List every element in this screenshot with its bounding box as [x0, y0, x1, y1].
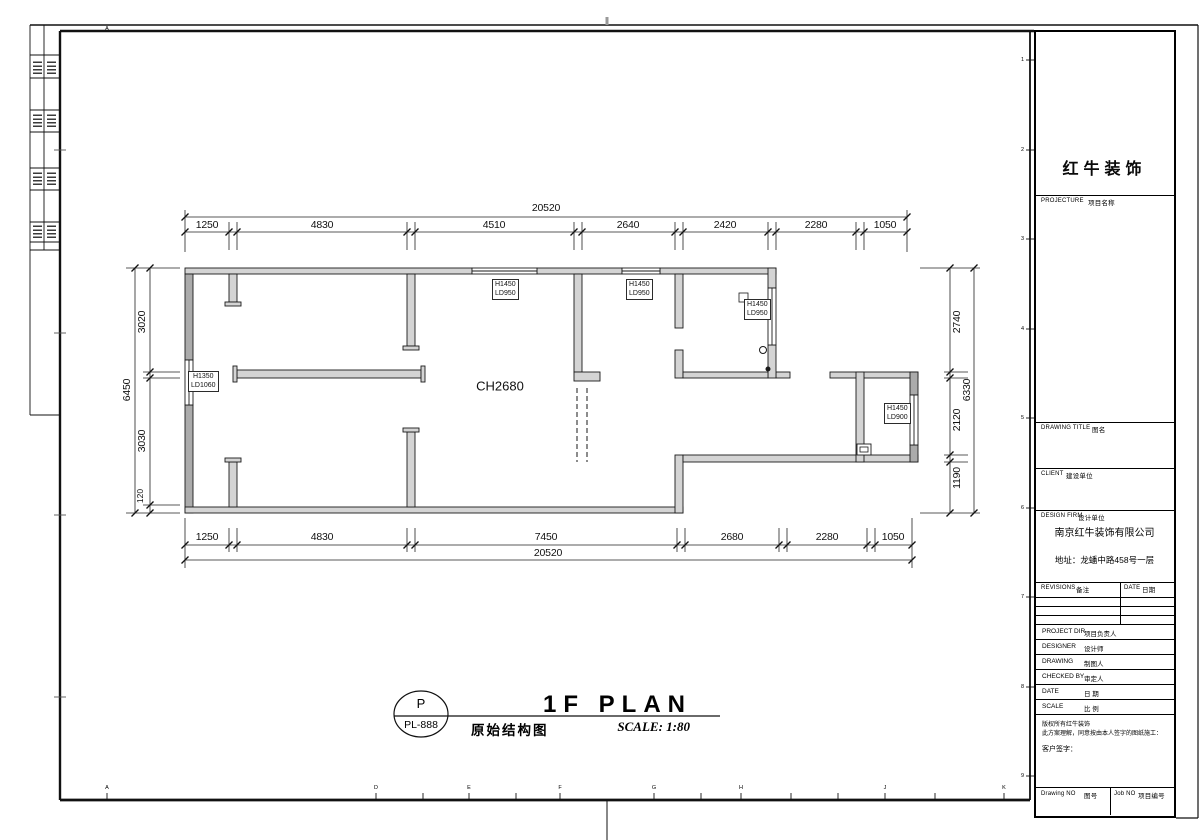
dim-left-overall: 6450	[121, 379, 133, 402]
job-no-label: Job NO	[1114, 791, 1136, 797]
drawing-title-label: DRAWING TITLE	[1041, 425, 1090, 431]
dim-top-seg-3: 2640	[617, 219, 640, 231]
customer-sign-label: 客户签字：	[1042, 744, 1077, 754]
windows	[185, 268, 918, 445]
tag-line2: LD950	[629, 290, 650, 299]
title-block: 红牛装饰 PROJECTURE 项目名称 DRAWING TITLE 图名 CL…	[1034, 30, 1176, 818]
dim-bot-seg-0: 1250	[196, 531, 219, 543]
divider	[1036, 468, 1174, 469]
tag-line1: H1350	[191, 373, 216, 382]
row-designer-label: DESIGNER	[1042, 643, 1076, 650]
revisions-label: REVISIONS	[1041, 585, 1075, 591]
sheet-title-en: 1F PLAN	[520, 691, 692, 719]
strip-mark	[33, 171, 42, 185]
sheet-scale: SCALE: 1:80	[520, 719, 690, 735]
bubble-letter: P	[395, 696, 447, 711]
dim-top-seg-0: 1250	[196, 219, 219, 231]
tag-line2: LD900	[887, 414, 908, 423]
reference-ticks	[107, 60, 1034, 800]
date-col-label: DATE	[1124, 585, 1140, 591]
strip-mark	[33, 224, 42, 238]
grid-number: 2	[1014, 147, 1024, 153]
grid-number: 4	[1014, 326, 1024, 332]
dim-top-seg-5: 2280	[805, 219, 828, 231]
row-checked-label: CHECKED BY	[1042, 673, 1084, 680]
drawing-no-cn: 图号	[1084, 790, 1097, 800]
window-tag: H1450 LD900	[884, 403, 911, 424]
grid-letter: A	[105, 785, 109, 791]
dim-left-seg-1: 3030	[136, 430, 148, 453]
divider	[1036, 639, 1174, 640]
project-title-label: PROJECTURE	[1041, 198, 1084, 204]
walls	[185, 268, 918, 513]
grid-letter: J	[884, 785, 887, 791]
dim-top-seg-6: 1050	[874, 219, 897, 231]
drawing-title-cn: 图名	[1092, 424, 1105, 434]
grid-letter: K	[1002, 785, 1006, 791]
client-cn: 建设单位	[1066, 470, 1093, 480]
cad-sheet: 20520 1250 4830 4510 2640 2420 2280 1050…	[0, 0, 1200, 840]
dim-bot-seg-3: 2680	[721, 531, 744, 543]
grid-letter: E	[467, 785, 471, 791]
drawing-no-label: Drawing NO	[1041, 791, 1076, 797]
divider	[1036, 195, 1174, 196]
tag-line2: LD950	[747, 310, 768, 319]
dim-right-overall: 6330	[961, 379, 973, 402]
tag-line1: H1450	[495, 281, 516, 290]
tag-line2: LD950	[495, 290, 516, 299]
job-no-cn: 项目编号	[1138, 790, 1165, 800]
divider	[1036, 684, 1174, 685]
dim-bot-seg-4: 2280	[816, 531, 839, 543]
row-scale-cn: 比 例	[1084, 703, 1099, 713]
tag-line1: H1450	[887, 405, 908, 414]
strip-mark	[47, 171, 56, 185]
grid-number: 9	[1014, 773, 1024, 779]
divider	[1036, 510, 1174, 511]
dim-right-seg-0: 2740	[951, 311, 963, 334]
firm-name: 南京红牛装饰有限公司	[1036, 524, 1173, 539]
divider	[1036, 624, 1174, 625]
grid-letter: D	[374, 785, 378, 791]
row-date-cn: 日 期	[1084, 688, 1099, 698]
firm-address: 地址：龙蟠中路458号一层	[1036, 554, 1173, 566]
dim-left-seg-2: 120	[135, 489, 145, 503]
row-drawing-label: DRAWING	[1042, 658, 1073, 665]
grid-letter: H	[739, 785, 743, 791]
dim-top-seg-4: 2420	[714, 219, 737, 231]
divider	[1036, 615, 1174, 616]
row-project-dir-label: PROJECT DIR	[1042, 628, 1085, 635]
window-tag: H1350 LD1060	[188, 371, 219, 392]
design-firm-cn: 设计单位	[1078, 512, 1105, 522]
dim-bot-overall: 20520	[534, 547, 562, 559]
revisions-cn: 备注	[1076, 584, 1089, 594]
divider	[1036, 787, 1174, 788]
row-scale-label: SCALE	[1042, 703, 1063, 710]
tag-line2: LD1060	[191, 382, 216, 391]
divider	[1036, 582, 1174, 583]
bottom-col-divider	[1110, 787, 1111, 815]
copyright-line1: 版权所有红牛装饰	[1042, 719, 1090, 728]
divider	[1036, 654, 1174, 655]
divider	[1036, 714, 1174, 715]
dim-top-overall: 20520	[532, 202, 560, 214]
grid-number: 3	[1014, 236, 1024, 242]
company-name: 红牛装饰	[1036, 155, 1173, 179]
grid-number: 6	[1014, 505, 1024, 511]
client-label: CLIENT	[1041, 471, 1064, 477]
strip-mark	[47, 60, 56, 74]
divider	[1036, 669, 1174, 670]
grid-letter: F	[558, 785, 561, 791]
date-col-cn: 日期	[1142, 584, 1155, 594]
tag-line1: H1450	[629, 281, 650, 290]
row-checked-cn: 审定人	[1084, 673, 1104, 683]
grid-number: 7	[1014, 594, 1024, 600]
tag-line1: H1450	[747, 301, 768, 310]
row-designer-cn: 设计师	[1084, 643, 1104, 653]
dim-top-seg-1: 4830	[311, 219, 334, 231]
grid-letter-top: A	[105, 26, 109, 32]
bubble-code: PL-888	[393, 719, 449, 731]
dim-bot-seg-1: 4830	[311, 531, 334, 543]
strip-mark	[47, 113, 56, 127]
ceiling-height-label: CH2680	[476, 379, 524, 394]
divider	[1036, 699, 1174, 700]
strip-mark	[47, 224, 56, 238]
row-date-label: DATE	[1042, 688, 1059, 695]
grid-letter: G	[652, 785, 656, 791]
dim-top-seg-2: 4510	[483, 219, 506, 231]
dim-right-seg-1: 2120	[951, 409, 963, 432]
dim-right-seg-2: 1190	[951, 467, 963, 489]
strip-mark	[33, 113, 42, 127]
grid-number: 8	[1014, 684, 1024, 690]
divider	[1036, 597, 1174, 598]
grid-number: 5	[1014, 415, 1024, 421]
strip-mark	[33, 60, 42, 74]
divider	[1036, 422, 1174, 423]
window-tag: H1450 LD950	[744, 299, 771, 320]
project-title-cn: 项目名称	[1088, 197, 1115, 207]
copyright-line2: 此方案理解，同意按由本人签字的图纸施工：	[1042, 728, 1162, 737]
row-project-dir-cn: 项目负责人	[1084, 628, 1117, 638]
dimension-lines	[126, 210, 980, 568]
design-firm-label: DESIGN FIRM	[1041, 513, 1083, 519]
grid-number: 1	[1014, 57, 1024, 63]
window-tag: H1450 LD950	[626, 279, 653, 300]
dim-bot-seg-2: 7450	[535, 531, 558, 543]
revisions-col-divider	[1120, 582, 1121, 624]
row-drawing-cn: 制图人	[1084, 658, 1104, 668]
dim-bot-seg-5: 1050	[882, 531, 905, 543]
dim-left-seg-0: 3020	[136, 311, 148, 334]
window-tag: H1450 LD950	[492, 279, 519, 300]
divider	[1036, 606, 1174, 607]
